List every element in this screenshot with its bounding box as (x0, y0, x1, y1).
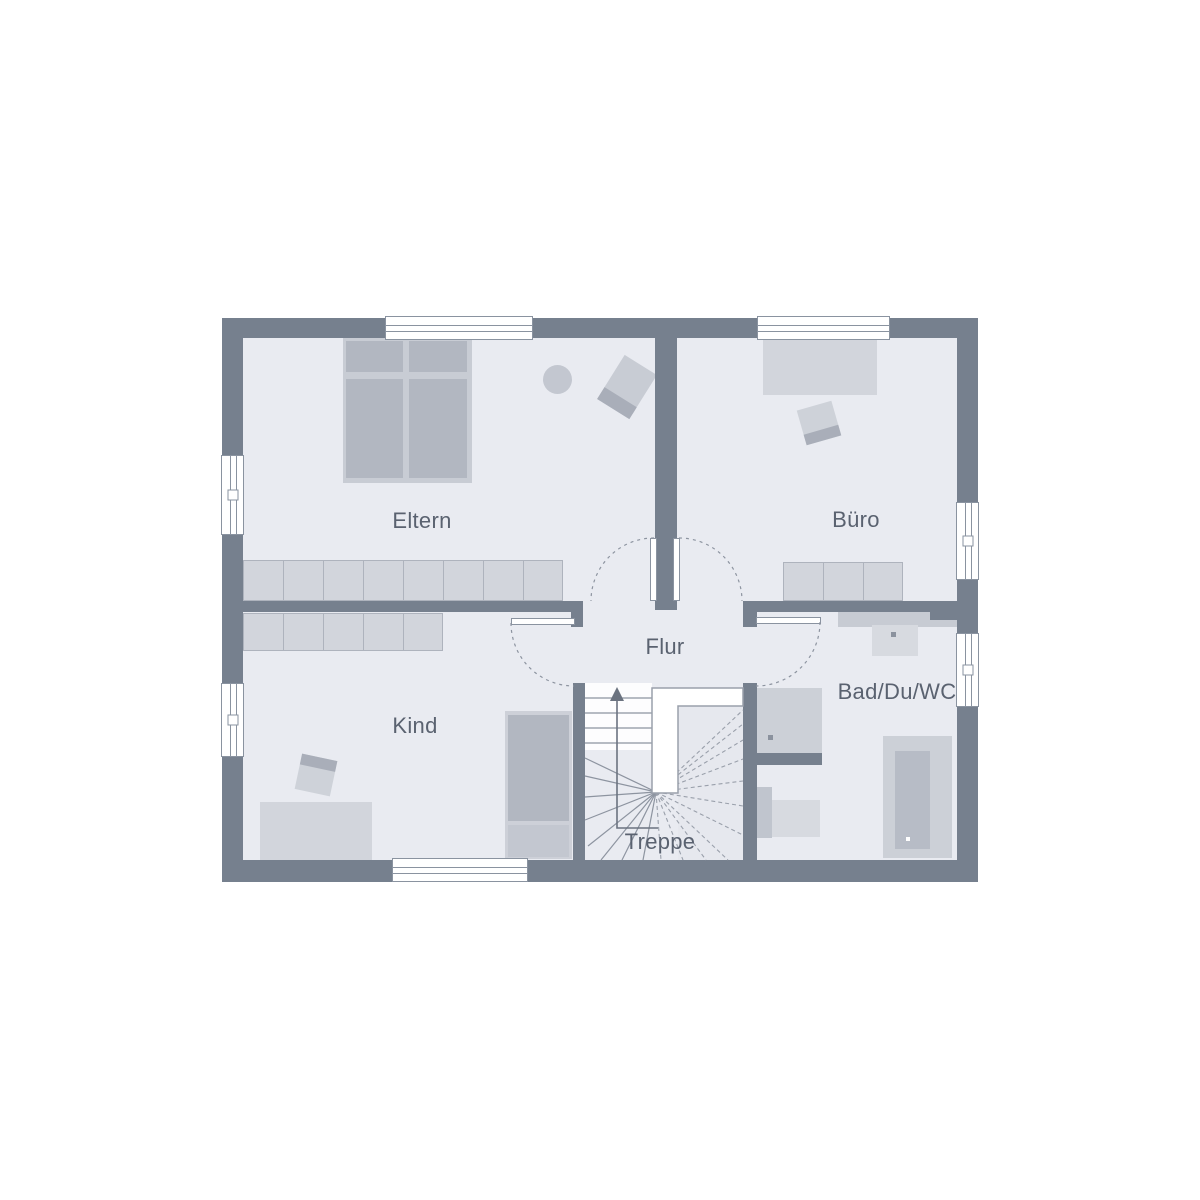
room-label-treppe: Treppe (625, 829, 696, 855)
floorplan-canvas: Eltern Büro Kind Flur Bad/Du/WC Treppe (0, 0, 1200, 1200)
room-label-bad: Bad/Du/WC (838, 679, 957, 705)
room-label-eltern: Eltern (392, 508, 451, 534)
room-label-buero: Büro (832, 507, 880, 533)
eltern-door-swing-arc (591, 538, 654, 601)
buero-door-swing-arc (679, 538, 742, 601)
room-label-kind: Kind (392, 713, 437, 739)
stairs-and-door-swings (0, 0, 1200, 1200)
kind-door-swing-arc (511, 623, 574, 686)
bad-door-swing-arc (756, 622, 820, 686)
room-label-flur: Flur (645, 634, 684, 660)
